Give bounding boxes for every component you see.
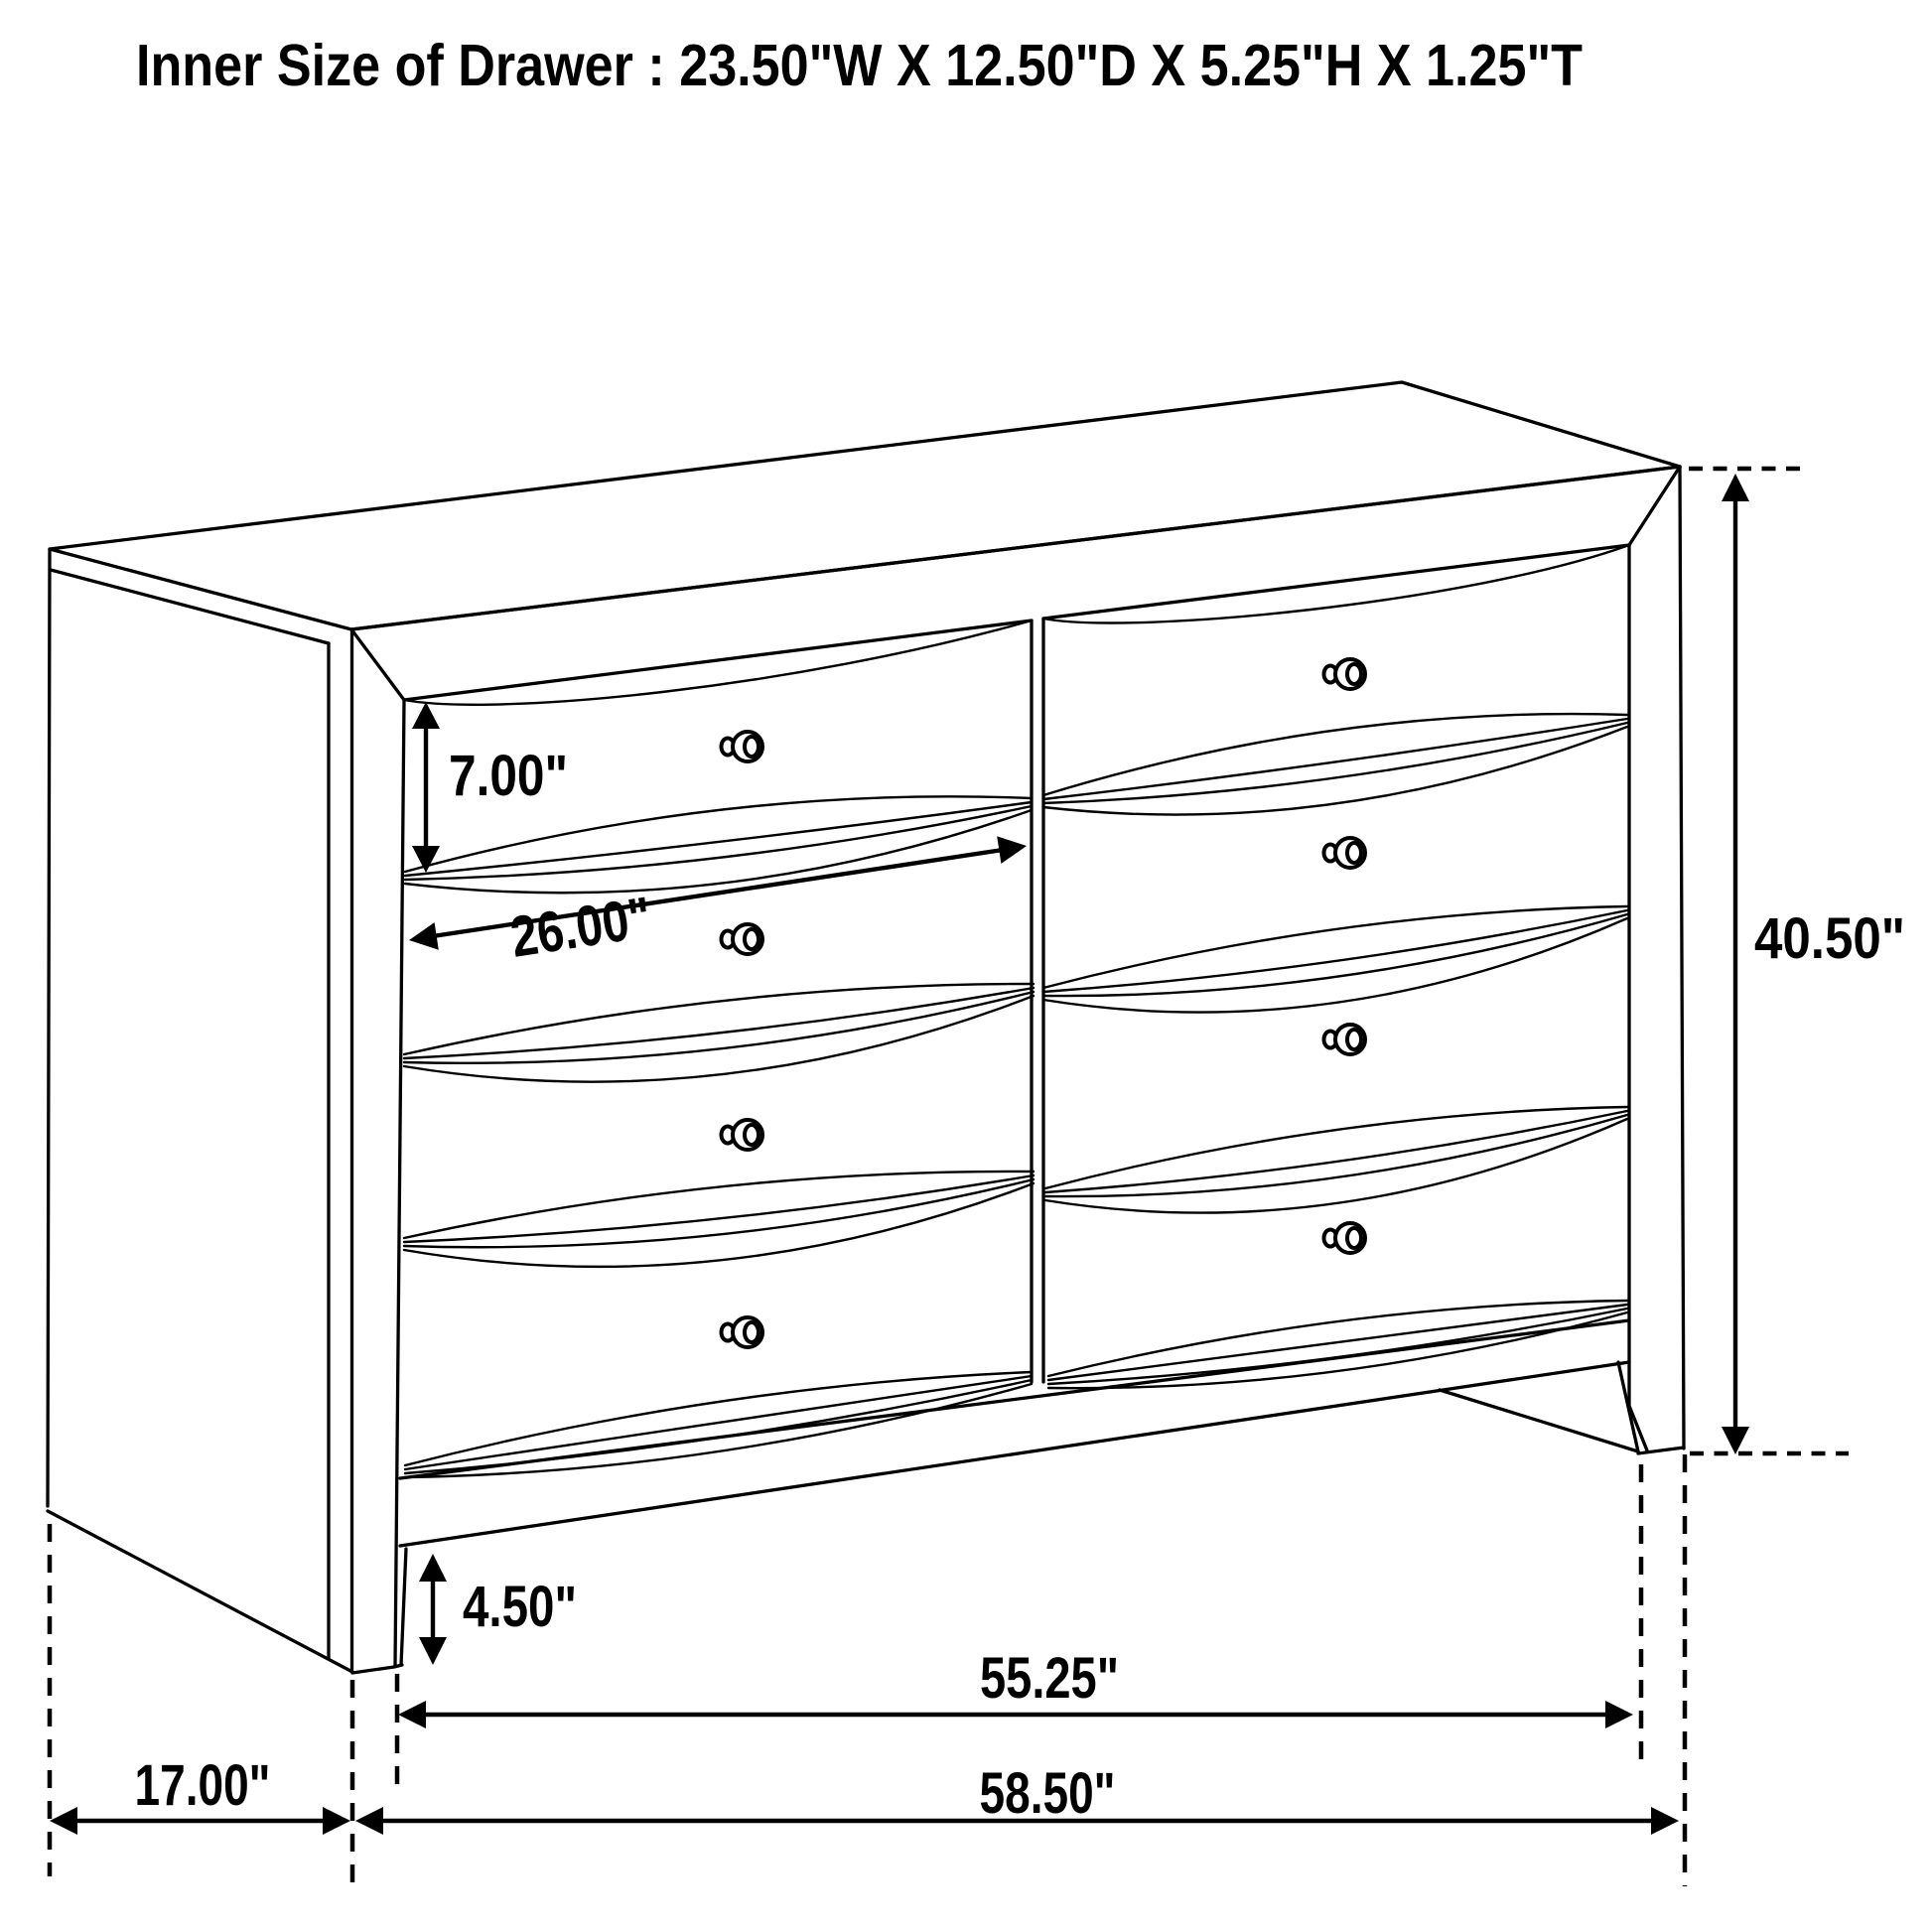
svg-text:7.00": 7.00" [449, 744, 568, 808]
svg-text:55.25": 55.25" [980, 1646, 1119, 1711]
svg-text:40.50": 40.50" [1754, 906, 1905, 971]
svg-text:4.50": 4.50" [463, 1575, 577, 1639]
svg-text:58.50": 58.50" [980, 1761, 1116, 1826]
svg-text:17.00": 17.00" [135, 1753, 271, 1818]
svg-text:Inner Size of Drawer : 23.50"W: Inner Size of Drawer : 23.50"W X 12.50"D… [136, 33, 1583, 98]
